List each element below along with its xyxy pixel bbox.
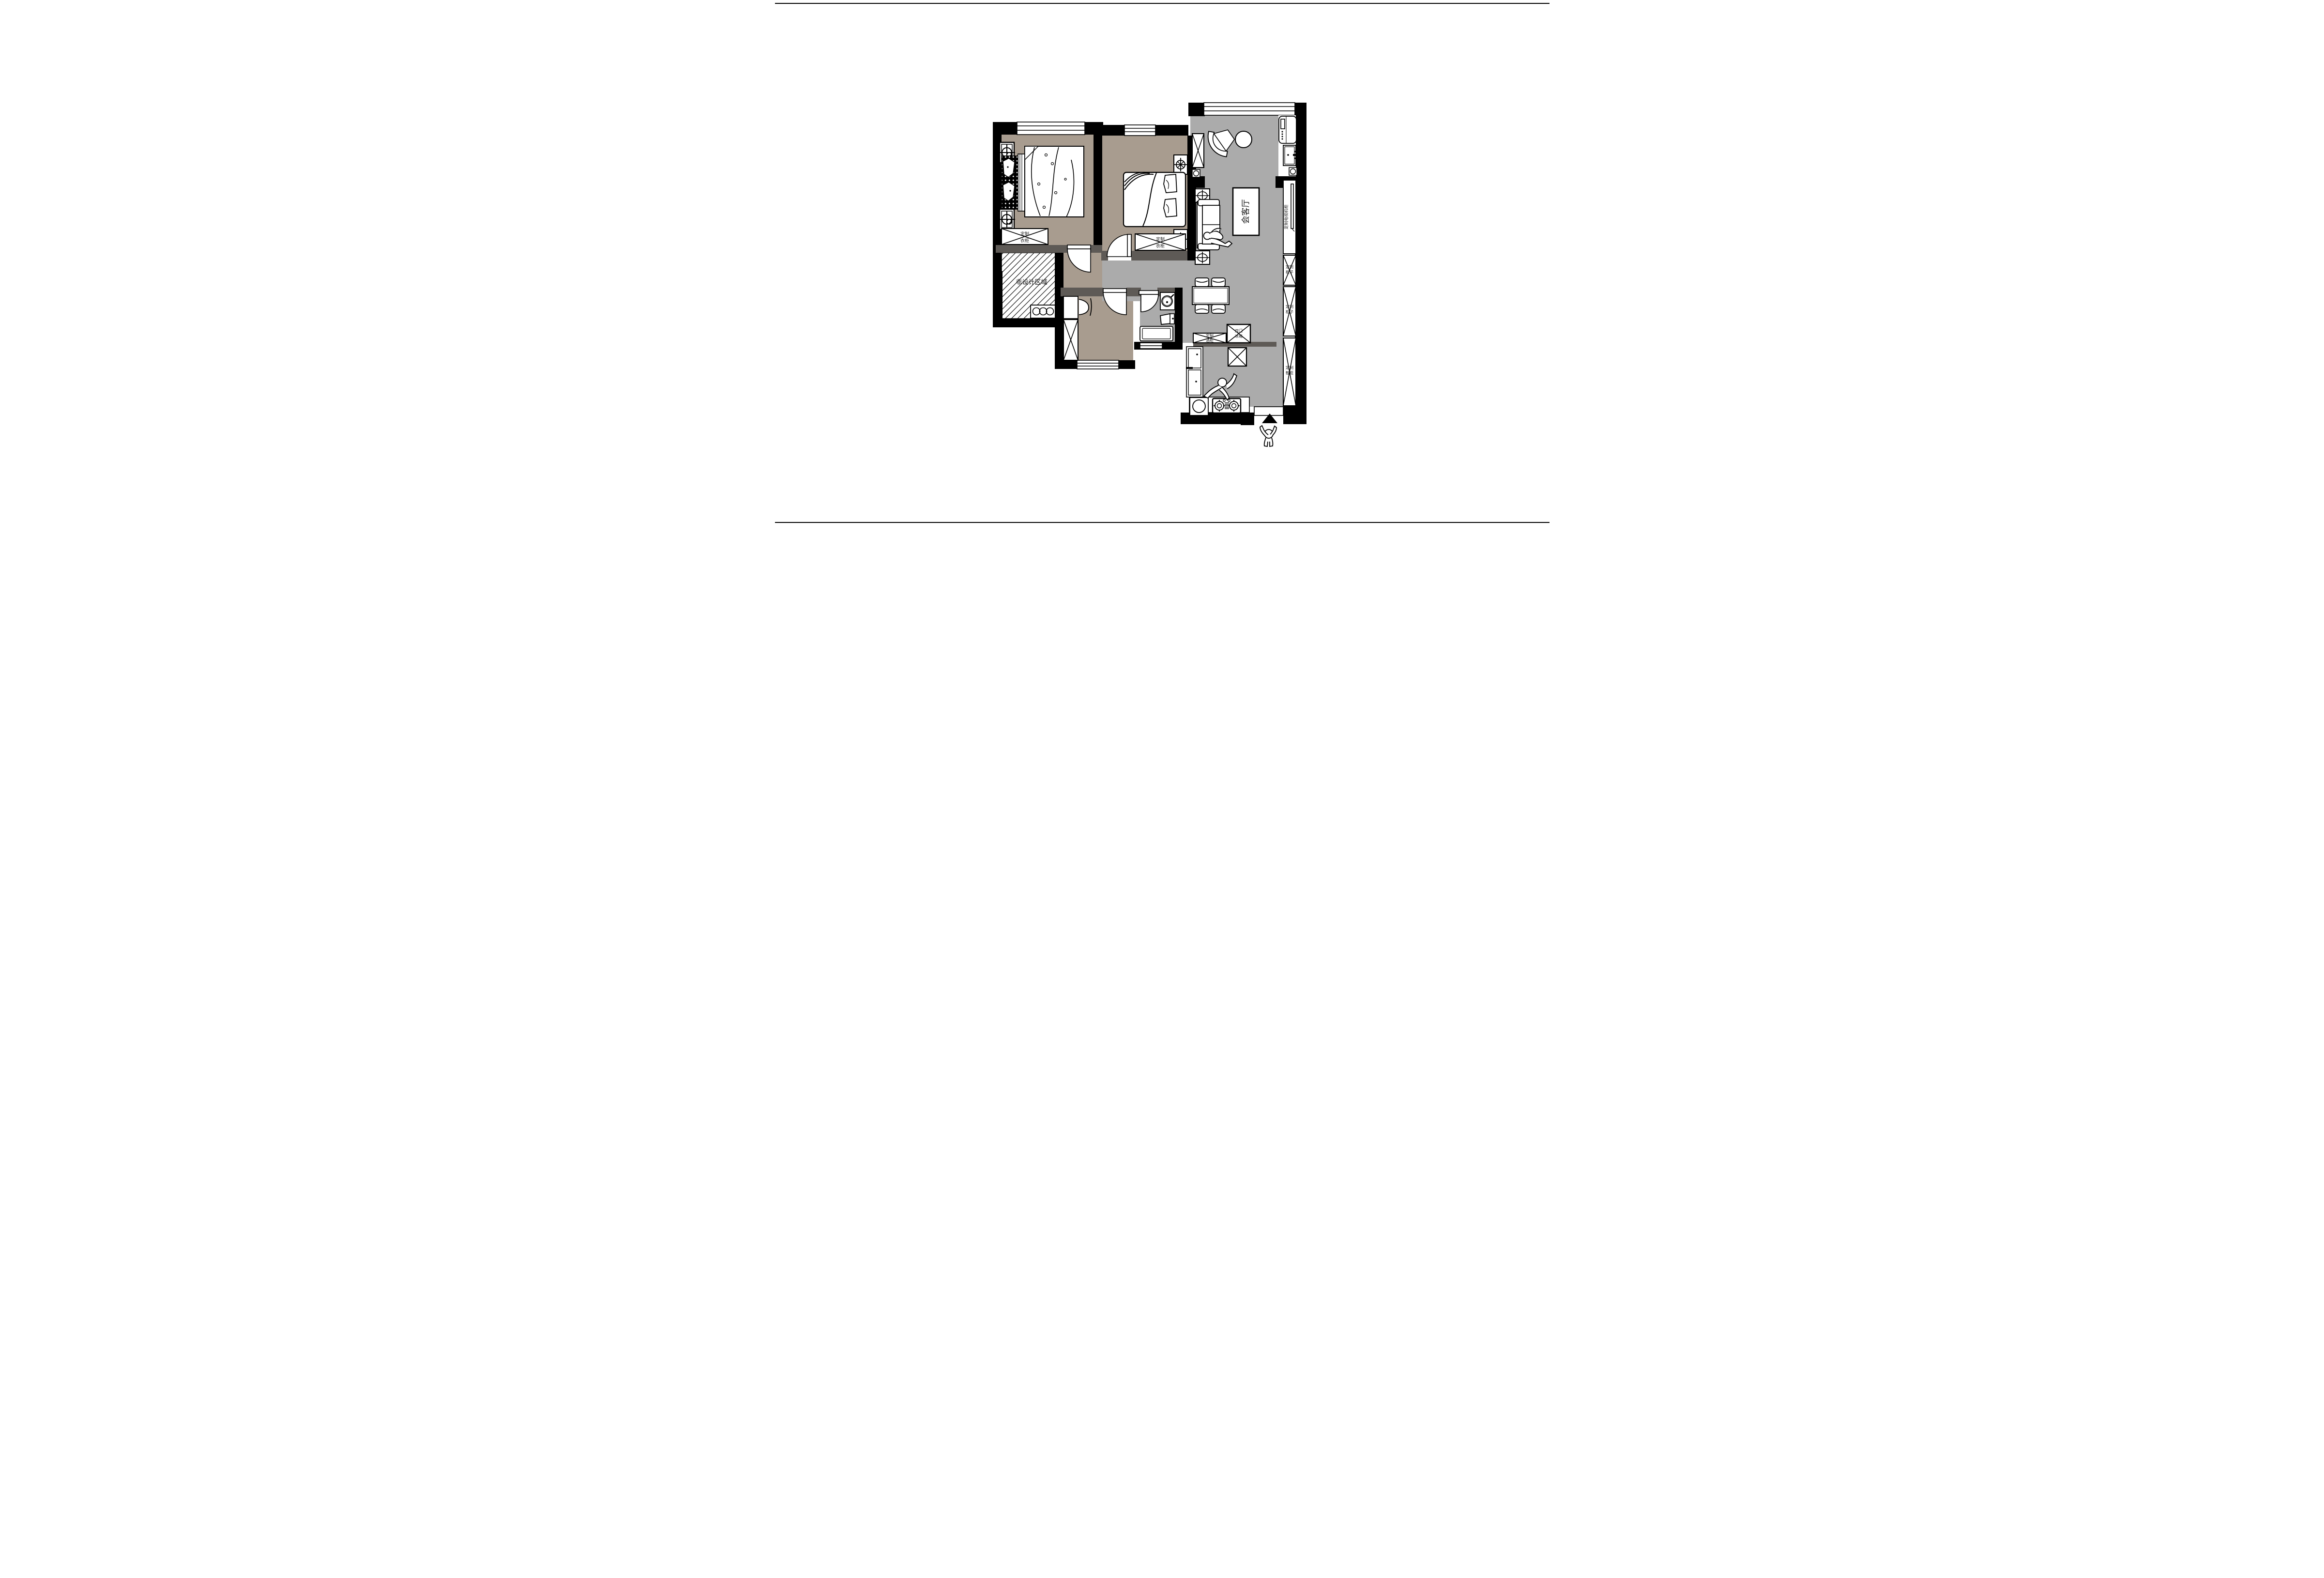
study-wardrobe [1063,320,1078,360]
round-table [1235,131,1252,148]
dining-chair [1195,305,1209,313]
sofa-armrest [1198,199,1219,206]
bed-slats [1018,154,1025,211]
shoe-cabinet-label-line2: 鞋柜 [1286,370,1293,375]
wall [1085,122,1103,135]
wall [1188,103,1205,116]
wall-divider-bedrooms [1094,134,1102,253]
custom-cabinet-1: 定制 柜子 [1283,255,1296,285]
wine-cabinet: 定制 酒柜 [1193,333,1226,343]
wall [1119,360,1135,369]
tv-wall: 定制电视机柜 [1283,180,1296,254]
wall-hatch-bottom [993,319,1063,327]
entry-corridor-floor [1249,301,1283,407]
wall [1155,125,1188,136]
floorplan-canvas: 非设计区域 [775,0,1549,526]
shoe-cabinet-label-line1: 定制 [1286,365,1293,370]
toilet [1160,314,1174,324]
living-room-rug: 会客厅 [1233,188,1259,235]
partition-study-top-b [1126,288,1135,296]
wall-step [1055,253,1063,369]
custom-cabinet-2: 定制 柜子 [1283,287,1296,336]
wall-right-outer [1295,138,1306,415]
second-wardrobe: 定制 衣柜 [1135,234,1185,250]
nightstand-lamp [1174,155,1187,174]
dining-chair [1195,278,1209,287]
pillow [1164,174,1177,193]
right-cabinet-column: 定制 柜子 定制 柜子 定制 鞋柜 [1283,255,1296,406]
fridge-label-line1: 双门 [1235,328,1243,333]
bathtub [1140,326,1173,341]
wardrobe-label-line2: 衣柜 [1155,243,1164,249]
wall-bathroom-right [1175,288,1183,350]
wardrobe-label-line1: 定制 [1155,236,1164,242]
master-wardrobe: 定制 衣柜 [1002,229,1048,245]
wall-balcony-partition-left [1188,176,1205,188]
wine-cabinet-label-line2: 酒柜 [1206,338,1214,343]
window-master-bedroom [1017,122,1085,135]
master-bed [1002,146,1084,217]
custom-cabinet-label-line1: 定制 [1286,264,1293,269]
partition-study-top-a [1061,288,1103,296]
balcony-opening [1205,176,1276,188]
wall-entry-left [1241,413,1254,425]
frame-line-bottom [775,522,1549,523]
entry [1254,407,1283,446]
partition-br2-bottom-b [1131,251,1187,260]
window-study [1077,360,1119,369]
partition-br1-bottom [996,245,1067,253]
wardrobe-label-line1: 定制 [1020,231,1029,237]
fridge-label-line2: 冰箱 [1235,334,1243,338]
non-design-area: 非设计区域 [1002,253,1062,319]
tv [1291,184,1293,229]
wall [1063,360,1077,369]
partition [1091,245,1102,253]
door-hinge [1186,367,1193,369]
kitchen-folding-door [1186,347,1203,397]
column-marker [999,209,1015,230]
floor-drain [1289,168,1297,175]
door-leaf [1139,291,1158,294]
gas-stove [1213,398,1241,413]
wine-cabinet-label-line1: 定制 [1206,333,1214,338]
custom-cabinet-label-line2: 柜子 [1286,270,1293,275]
desk [1063,296,1078,319]
wall [1102,125,1124,136]
washing-machine [1279,116,1296,143]
non-design-area-label: 非设计区域 [1016,279,1047,286]
mattress [1025,146,1084,217]
window-bathroom [1140,343,1162,349]
dining-table [1192,287,1229,305]
three-circle-cabinet [1031,305,1056,318]
dining-chair [1212,278,1225,287]
custom-cabinet-label-line2: 柜子 [1286,309,1293,314]
kitchen-cabinet [1228,348,1246,366]
second-bed [1124,172,1185,227]
tv-cabinet-label: 定制电视机柜 [1284,204,1289,230]
double-door-fridge: 双门 冰箱 [1227,324,1250,343]
pillow [1164,199,1177,217]
shoe-cabinet: 定制 鞋柜 [1283,338,1296,406]
custom-cabinet-label-line1: 定制 [1286,304,1293,309]
entry-threshold [1254,407,1283,415]
person-entering [1260,426,1276,446]
frame-line-top [775,3,1549,4]
door-handle [1293,154,1297,156]
door-leaf [1127,234,1131,257]
wardrobe-label-line2: 衣柜 [1020,238,1029,244]
sofa-side-table [1195,251,1210,264]
living-room-label: 会客厅 [1241,199,1251,224]
window-second-bedroom [1124,125,1155,136]
window-balcony-top [1204,103,1295,115]
wall-entry-corner [1283,406,1306,424]
kitchen-sink [1190,398,1208,415]
dining-chair [1212,305,1225,313]
door-leaf [1103,289,1126,292]
floorplan-page: 非设计区域 [775,0,1549,526]
door-leaf [1067,245,1091,249]
utility-door-panel [1283,145,1297,166]
washbasin [1160,292,1175,310]
